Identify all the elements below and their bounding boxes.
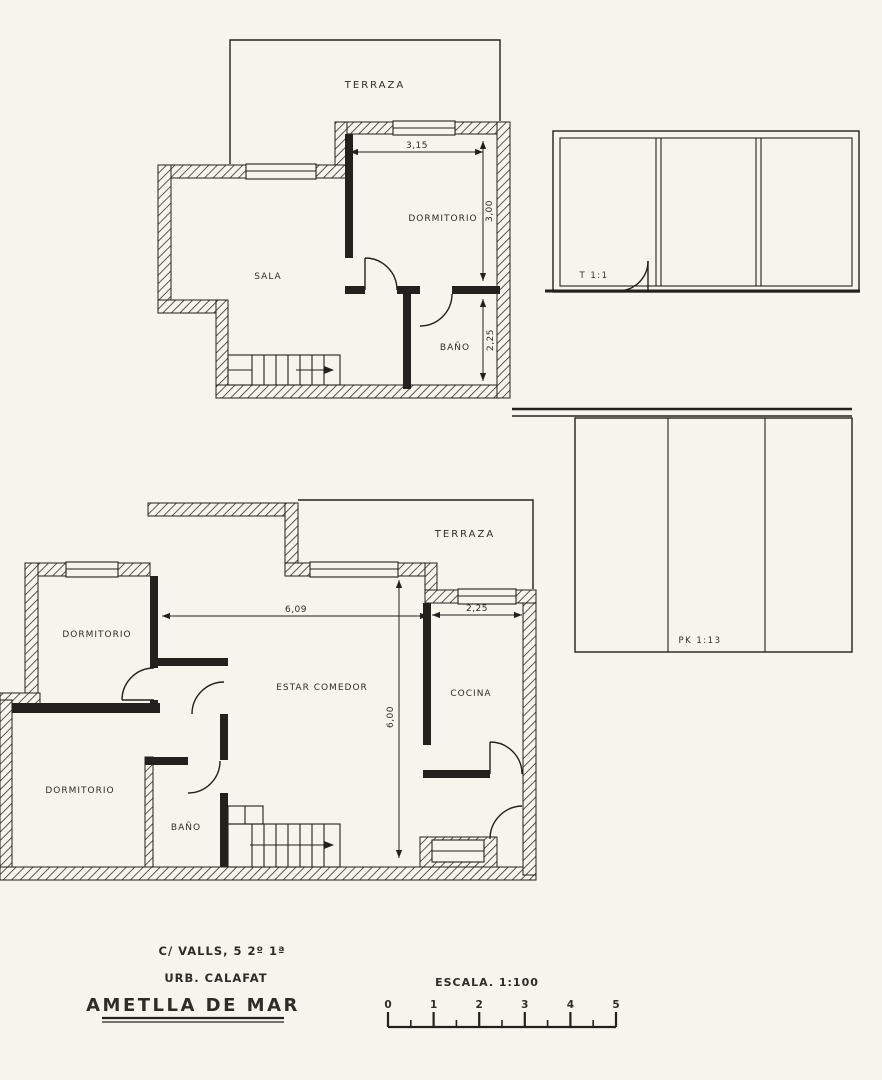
dim-upper-height: 3,00: [485, 200, 495, 222]
lower-staircase-icon: [228, 806, 340, 867]
upper-exterior-walls: [158, 122, 510, 398]
dim-upper-bath-height: 2,25: [486, 329, 496, 351]
upper-partitions: [345, 134, 500, 389]
room-label-terraza-lower: TERRAZA: [434, 529, 495, 540]
upper-terrace-outline: [230, 40, 500, 164]
window-icon: [246, 164, 316, 179]
room-label-dormitorio-upper: DORMITORIO: [408, 214, 477, 224]
room-label-cocina: COCINA: [450, 689, 491, 699]
window-icon: [393, 121, 455, 135]
scale-tick-2: 2: [476, 999, 483, 1011]
dim-lower-kitchen-width: 2,25: [466, 604, 488, 614]
scale-tick-3: 3: [521, 999, 528, 1011]
window-icon: [66, 562, 118, 577]
lower-dimensions: 6,09 2,25 6,00: [162, 580, 522, 858]
door-arc-icon: [490, 806, 522, 839]
door-arc-icon: [122, 668, 154, 700]
lower-partitions: [12, 576, 490, 867]
plan-drawing: 3,15 3,00 2,25 TERRAZA DORMITORIO SALA B…: [0, 0, 882, 1080]
title-block: C/ VALLS, 5 2º 1ª URB. CALAFAT AMETLLA D…: [86, 944, 300, 1022]
door-arc-icon: [490, 742, 522, 774]
room-label-terraza-upper: TERRAZA: [344, 80, 405, 91]
room-label-sala: SALA: [254, 272, 281, 282]
elevation-top: T 1:1: [545, 131, 860, 292]
scale-tick-0: 0: [384, 999, 391, 1011]
elevation-bottom: PK 1:13: [512, 409, 852, 652]
address-line-1: C/ VALLS, 5 2º 1ª: [159, 944, 286, 958]
window-icon: [310, 562, 398, 577]
room-label-dormitorio-top: DORMITORIO: [62, 630, 131, 640]
dim-lower-height: 6,00: [386, 706, 396, 728]
door-arc-icon: [188, 761, 220, 793]
door-arc-icon: [365, 258, 397, 290]
address-line-2: URB. CALAFAT: [164, 971, 267, 985]
dim-lower-living-width: 6,09: [285, 605, 307, 615]
lower-floor-plan: 6,09 2,25 6,00 TERRAZA DORMITORIO ESTAR …: [0, 500, 536, 880]
window-icon: [458, 589, 516, 604]
room-label-dormitorio-bottom: DORMITORIO: [45, 786, 114, 796]
scale-label: ESCALA. 1:100: [435, 976, 539, 989]
scale-tick-1: 1: [430, 999, 437, 1011]
room-label-estar-comedor: ESTAR COMEDOR: [276, 683, 368, 693]
room-label-bano-lower: BAÑO: [171, 822, 201, 833]
upper-floor-plan: 3,15 3,00 2,25 TERRAZA DORMITORIO SALA B…: [158, 40, 510, 398]
upper-staircase-icon: [228, 355, 340, 385]
scanned-floor-plan-sheet: 3,15 3,00 2,25 TERRAZA DORMITORIO SALA B…: [0, 0, 882, 1080]
scale-bar: ESCALA. 1:100 0 1 2 3 4 5: [384, 976, 619, 1027]
scale-tick-5: 5: [612, 999, 619, 1011]
window-icon: [432, 840, 484, 862]
city-title: AMETLLA DE MAR: [86, 995, 300, 1016]
room-label-bano-upper: BAÑO: [440, 342, 470, 353]
door-arc-icon: [192, 682, 224, 714]
upper-dimensions: 3,15 3,00 2,25: [350, 141, 496, 381]
elevation-top-label: T 1:1: [578, 271, 608, 281]
elevation-bottom-label: PK 1:13: [679, 636, 722, 646]
door-arc-icon: [420, 294, 452, 326]
scale-tick-4: 4: [567, 999, 574, 1011]
dim-upper-width: 3,15: [406, 141, 428, 151]
